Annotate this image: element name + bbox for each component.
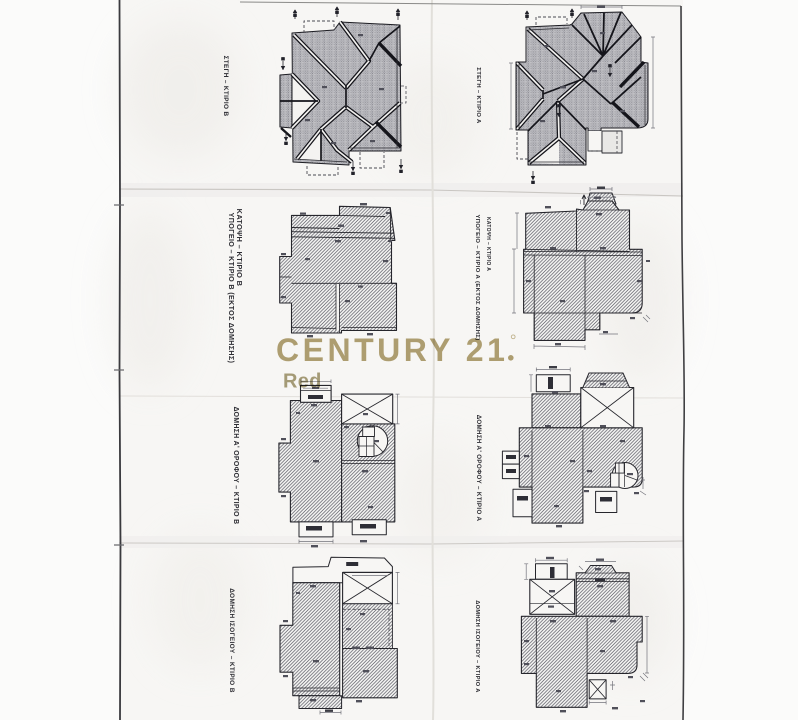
svg-text:ΔΟΜΗΣΗ ΙΣΟΓΕΙΟΥ – ΚΤΙΡΙΟ Α: ΔΟΜΗΣΗ ΙΣΟΓΕΙΟΥ – ΚΤΙΡΙΟ Α	[474, 600, 480, 692]
svg-text:ΔΟΜΗΣΗ ΙΣΟΓΕΙΟΥ – ΚΤΙΡΙΟ Β: ΔΟΜΗΣΗ ΙΣΟΓΕΙΟΥ – ΚΤΙΡΙΟ Β	[228, 588, 235, 693]
svg-text:CENTURY 21: CENTURY 21	[276, 332, 508, 368]
svg-text:Red: Red	[283, 371, 322, 393]
svg-text:ΥΠΟΓΕΙΟ – ΚΤΙΡΙΟ Α (ΕΚΤΟΣ ΔΟΜΗ: ΥΠΟΓΕΙΟ – ΚΤΙΡΙΟ Α (ΕΚΤΟΣ ΔΟΜΗΣΗΣ)	[474, 214, 480, 340]
svg-text:ΔΟΜΗΣΗ Αʹ ΟΡΟΦΟΥ – ΚΤΙΡΙΟ Α: ΔΟΜΗΣΗ Αʹ ΟΡΟΦΟΥ – ΚΤΙΡΙΟ Α	[475, 415, 482, 522]
svg-text:ΣΤΕΓΗ – ΚΤΙΡΙΟ Α: ΣΤΕΓΗ – ΚΤΙΡΙΟ Α	[475, 67, 481, 124]
svg-text:ΣΤΕΓΗ – ΚΤΙΡΙΟ Β: ΣΤΕΓΗ – ΚΤΙΡΙΟ Β	[222, 56, 229, 117]
svg-text:ΚΑΤΟΨΗ – ΚΤΙΡΙΟ Α: ΚΑΤΟΨΗ – ΚΤΙΡΙΟ Α	[485, 217, 491, 271]
svg-text:ΥΠΟΓΕΙΟ – ΚΤΙΡΙΟ Β (ΕΚΤΟΣ ΔΟΜΗ: ΥΠΟΓΕΙΟ – ΚΤΙΡΙΟ Β (ΕΚΤΟΣ ΔΟΜΗΣΗΣ)	[227, 213, 235, 364]
svg-text:ΚΑΤΟΨΗ – ΚΤΙΡΙΟ Β: ΚΑΤΟΨΗ – ΚΤΙΡΙΟ Β	[235, 209, 244, 287]
svg-text:ΔΟΜΗΣΗ Αʹ ΟΡΟΦΟΥ – ΚΤΙΡΙΟ Β: ΔΟΜΗΣΗ Αʹ ΟΡΟΦΟΥ – ΚΤΙΡΙΟ Β	[232, 407, 239, 525]
